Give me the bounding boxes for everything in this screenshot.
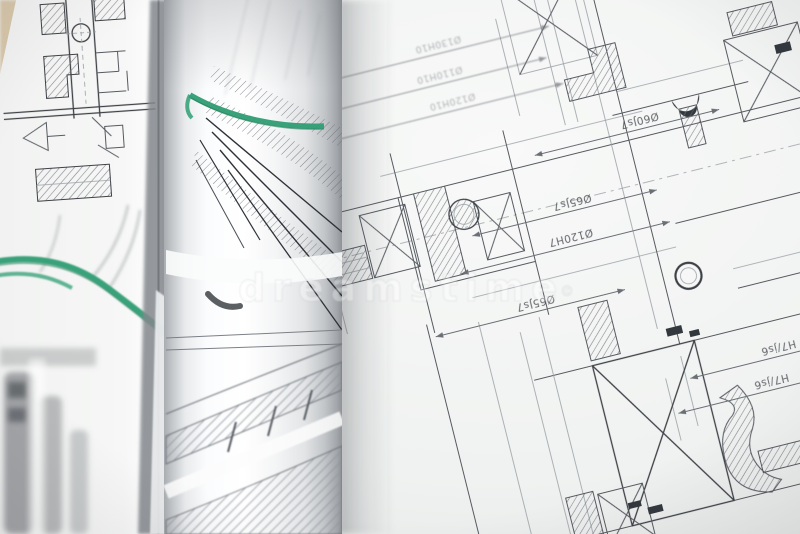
photo-rolled-engineering-drawings: Ø60Js7 Ø65Js7 Ø120H7 Ø65Js7 H7/js6 H7/js… xyxy=(0,0,800,534)
vignette xyxy=(0,0,800,534)
blueprint-photo-canvas: Ø60Js7 Ø65Js7 Ø120H7 Ø65Js7 H7/js6 H7/js… xyxy=(0,0,800,534)
